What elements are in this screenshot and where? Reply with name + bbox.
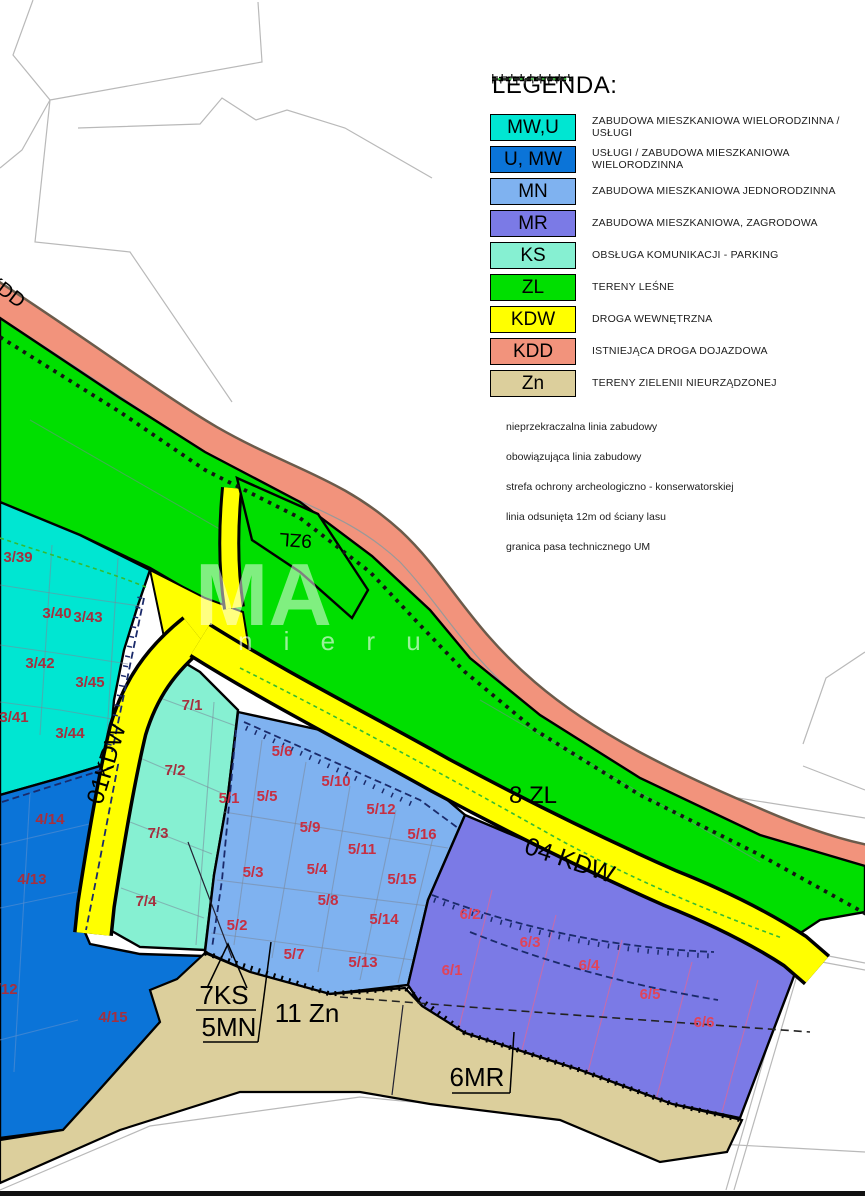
legend-swatch: MR — [490, 210, 576, 237]
legend-item-label: ZABUDOWA MIESZKANIOWA JEDNORODZINNA — [592, 186, 836, 198]
zoning-plan-screenshot: 3/393/403/433/423/453/413/444/144/134/12… — [0, 0, 865, 1200]
parcel-label-6-5: 6/5 — [640, 986, 661, 1003]
parcel-label-5-9: 5/9 — [300, 819, 321, 836]
parcel-label-4-13: 4/13 — [17, 871, 46, 888]
parcel-label-4-15: 4/15 — [98, 1009, 127, 1026]
parcel-label-5-13: 5/13 — [348, 954, 377, 971]
parcel-label-3-42: 3/42 — [25, 655, 54, 672]
parcel-label-5-16: 5/16 — [407, 826, 436, 843]
legend-swatch: KDW — [490, 306, 576, 333]
legend-item-label: OBSŁUGA KOMUNIKACJI - PARKING — [592, 250, 778, 262]
legend-item-mwu: MW,UZABUDOWA MIESZKANIOWA WIELORODZINNA … — [490, 114, 862, 141]
legend-swatch: MN — [490, 178, 576, 205]
parcel-label-7-2: 7/2 — [165, 762, 186, 779]
legend-item-kdd: KDDISTNIEJĄCA DROGA DOJAZDOWA — [490, 338, 862, 365]
zone-label-5mn: 5MN — [202, 1012, 257, 1042]
parcel-label-3-43: 3/43 — [73, 609, 102, 626]
parcel-label-4-12: 4/12 — [0, 981, 18, 998]
legend-line-tech-strip: granica pasa technicznego UM — [490, 533, 862, 563]
legend-item-mn: MNZABUDOWA MIESZKANIOWA JEDNORODZINNA — [490, 178, 862, 205]
parcel-label-5-12: 5/12 — [366, 801, 395, 818]
parcel-label-5-1: 5/1 — [219, 790, 240, 807]
parcel-label-6-3: 6/3 — [520, 934, 541, 951]
parcel-label-3-40: 3/40 — [42, 605, 71, 622]
parcel-label-4-14: 4/14 — [35, 811, 65, 828]
legend-line-forest-offset: linia odsunięta 12m od ściany lasu — [490, 503, 862, 533]
parcel-label-5-2: 5/2 — [227, 917, 248, 934]
parcel-label-5-4: 5/4 — [307, 861, 329, 878]
legend-line-label: strefa ochrony archeologiczno - konserwa… — [506, 482, 734, 494]
legend-line-label: obowiązująca linia zabudowy — [506, 452, 641, 464]
legend-item-label: TERENY LEŚNE — [592, 282, 674, 294]
parcel-label-5-10: 5/10 — [321, 773, 350, 790]
legend-item-label: ZABUDOWA MIESZKANIOWA, ZAGRODOWA — [592, 218, 818, 230]
legend-line-label: nieprzekraczalna linia zabudowy — [506, 422, 657, 434]
parcel-label-7-3: 7/3 — [148, 825, 169, 842]
zone-label-11-zn: 11 Zn — [275, 998, 340, 1028]
parcel-label-5-6: 5/6 — [272, 743, 293, 760]
legend-line-label: granica pasa technicznego UM — [506, 542, 650, 554]
legend-swatch: ZL — [490, 274, 576, 301]
bottom-border-bar — [0, 1191, 865, 1196]
legend-item-zn: ZnTERENY ZIELENII NIEURZĄDZONEJ — [490, 370, 862, 397]
legend-item-kdw: KDWDROGA WEWNĘTRZNA — [490, 306, 862, 333]
legend-swatch: KS — [490, 242, 576, 269]
parcel-label-5-8: 5/8 — [318, 892, 339, 909]
legend-item-label: DROGA WEWNĘTRZNA — [592, 314, 712, 326]
legend-swatch: MW,U — [490, 114, 576, 141]
legend-line-label: linia odsunięta 12m od ściany lasu — [506, 512, 666, 524]
parcel-label-3-41: 3/41 — [0, 709, 29, 726]
parcel-label-3-39: 3/39 — [3, 549, 32, 566]
legend-item-mr: MRZABUDOWA MIESZKANIOWA, ZAGRODOWA — [490, 210, 862, 237]
legend-swatch: Zn — [490, 370, 576, 397]
legend-item-ks: KSOBSŁUGA KOMUNIKACJI - PARKING — [490, 242, 862, 269]
legend-line-archeo: strefa ochrony archeologiczno - konserwa… — [490, 473, 862, 503]
legend-line-symbols: nieprzekraczalna linia zabudowyobowiązuj… — [490, 413, 862, 563]
legend-line-building-limit: nieprzekraczalna linia zabudowy — [490, 413, 862, 443]
parcel-label-5-5: 5/5 — [257, 788, 278, 805]
legend-item-label: USŁUGI / ZABUDOWA MIESZKANIOWA WIELORODZ… — [592, 148, 862, 171]
parcel-label-5-15: 5/15 — [387, 871, 416, 888]
parcel-label-3-44: 3/44 — [55, 725, 85, 742]
legend-item-label: ISTNIEJĄCA DROGA DOJAZDOWA — [592, 346, 768, 358]
zone-label-8-zl: 8 ZL — [509, 782, 557, 809]
parcel-label-6-4: 6/4 — [579, 957, 601, 974]
zone-label-7ks: 7KS — [199, 980, 248, 1010]
legend-item-label: ZABUDOWA MIESZKANIOWA WIELORODZINNA / US… — [592, 116, 862, 139]
parcel-label-6-1: 6/1 — [442, 962, 463, 979]
legend-item-label: TERENY ZIELENII NIEURZĄDZONEJ — [592, 378, 777, 390]
legend-items: MW,UZABUDOWA MIESZKANIOWA WIELORODZINNA … — [490, 114, 862, 397]
legend-item-zl: ZLTERENY LEŚNE — [490, 274, 862, 301]
parcel-label-5-3: 5/3 — [243, 864, 264, 881]
parcel-label-5-11: 5/11 — [348, 841, 376, 858]
parcel-label-5-7: 5/7 — [284, 946, 305, 963]
parcel-label-7-4: 7/4 — [136, 893, 158, 910]
legend-line-building-oblig: obowiązująca linia zabudowy — [490, 443, 862, 473]
tech-strip-symbol — [490, 72, 574, 86]
zone-label-6mr: 6MR — [450, 1062, 505, 1092]
parcel-label-6-2: 6/2 — [460, 906, 481, 923]
parcel-label-3-45: 3/45 — [75, 674, 104, 691]
parcel-label-6-6: 6/6 — [694, 1014, 715, 1031]
legend-swatch: KDD — [490, 338, 576, 365]
legend-swatch: U, MW — [490, 146, 576, 173]
parcel-label-7-1: 7/1 — [182, 697, 203, 714]
legend-panel: LEGENDA: MW,UZABUDOWA MIESZKANIOWA WIELO… — [490, 72, 862, 563]
watermark-small-text: n i e r u — [238, 626, 433, 656]
legend-item-umw: U, MWUSŁUGI / ZABUDOWA MIESZKANIOWA WIEL… — [490, 146, 862, 173]
parcel-label-5-14: 5/14 — [369, 911, 399, 928]
